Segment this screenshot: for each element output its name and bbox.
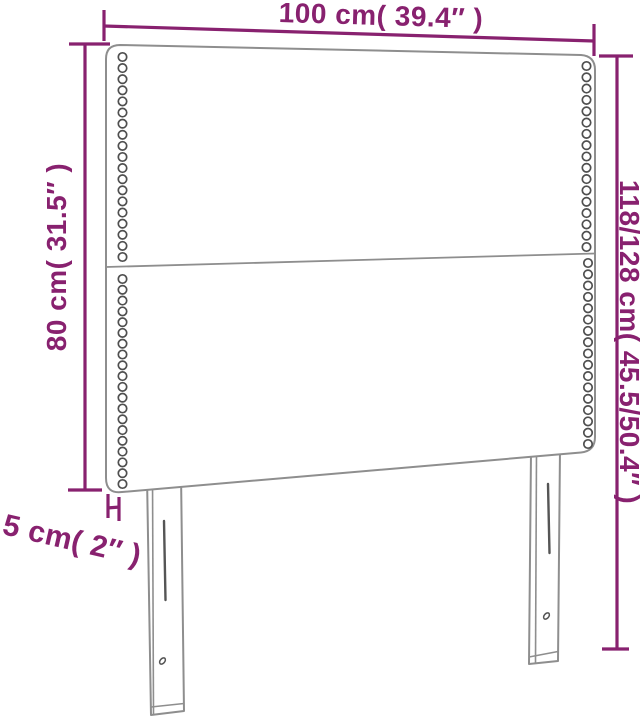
nailhead-stud — [118, 231, 126, 239]
nailhead-stud — [118, 426, 126, 434]
nailhead-stud — [582, 73, 590, 81]
nailhead-stud — [582, 84, 590, 92]
nailhead-stud — [118, 186, 126, 194]
headboard — [106, 45, 595, 492]
right-leg-mounting-slot — [548, 484, 550, 553]
nailhead-stud — [118, 208, 126, 216]
nailhead-stud — [582, 232, 590, 240]
nailhead-stud — [118, 120, 126, 128]
nailhead-stud — [118, 383, 126, 391]
nailhead-stud — [584, 383, 592, 391]
nailhead-stud — [584, 315, 592, 323]
nailhead-stud — [582, 175, 590, 183]
nailhead-stud — [582, 220, 590, 228]
nailhead-stud — [584, 372, 592, 380]
thickness-dimension-line — [107, 507, 120, 508]
nailhead-stud — [118, 242, 126, 250]
nailhead-stud — [118, 480, 126, 488]
nailhead-stud — [118, 296, 126, 304]
nailhead-stud — [118, 64, 126, 72]
nailhead-stud — [118, 164, 126, 172]
height-right-dimension-label: 118/128 cm( 45.5/50.4″ ) — [613, 180, 643, 504]
nailhead-stud — [118, 253, 126, 261]
nailhead-stud — [584, 259, 592, 267]
nailhead-stud — [118, 153, 126, 161]
nailhead-stud — [582, 118, 590, 126]
left-leg — [147, 473, 184, 715]
thickness-dimension — [107, 494, 120, 521]
nailhead-stud — [118, 350, 126, 358]
nailhead-stud — [118, 437, 126, 445]
nailhead-stud — [584, 440, 592, 448]
nailhead-stud — [582, 164, 590, 172]
left-leg-mounting-slot — [164, 521, 166, 600]
nailhead-stud — [118, 86, 126, 94]
nailhead-stud — [582, 186, 590, 194]
nailhead-stud — [118, 415, 126, 423]
nailhead-stud — [584, 349, 592, 357]
headboard-outline — [106, 45, 595, 492]
left-leg-side-edge — [153, 476, 154, 714]
nailhead-stud — [118, 75, 126, 83]
product-dimension-diagram: 100 cm( 39.4″ ) 80 cm( 31.5″ ) 118/128 c… — [0, 0, 643, 720]
diagram-canvas — [0, 0, 643, 720]
nailhead-stud — [582, 130, 590, 138]
nailhead-stud — [118, 469, 126, 477]
nailhead-stud — [582, 96, 590, 104]
height-left-dimension-label: 80 cm( 31.5″ ) — [41, 163, 73, 352]
nailhead-stud — [582, 141, 590, 149]
nailhead-stud — [584, 270, 592, 278]
nailhead-stud — [584, 338, 592, 346]
nailhead-stud — [118, 197, 126, 205]
nailhead-stud — [118, 53, 126, 61]
right-leg — [529, 449, 560, 664]
nailhead-stud — [584, 395, 592, 403]
nailhead-stud — [582, 152, 590, 160]
nailhead-stud — [118, 372, 126, 380]
height-left-dimension — [68, 44, 110, 490]
nailhead-stud — [118, 108, 126, 116]
nailhead-stud — [118, 361, 126, 369]
nailhead-stud — [584, 417, 592, 425]
nailhead-stud — [582, 209, 590, 217]
nailhead-stud — [582, 198, 590, 206]
nailhead-stud — [118, 329, 126, 337]
nailhead-stud — [118, 175, 126, 183]
right-leg-side-edge — [536, 453, 537, 663]
nailhead-stud — [118, 97, 126, 105]
nailhead-stud — [118, 220, 126, 228]
nailhead-stud — [118, 340, 126, 348]
right-leg-outline — [529, 449, 560, 664]
nailhead-stud — [582, 107, 590, 115]
nailhead-stud — [118, 286, 126, 294]
width-dimension-label: 100 cm( 39.4″ ) — [278, 0, 483, 35]
nailhead-stud — [118, 131, 126, 139]
nailhead-stud — [582, 243, 590, 251]
nailhead-stud — [118, 142, 126, 150]
nailhead-stud — [118, 275, 126, 283]
nailhead-stud — [582, 62, 590, 70]
nailhead-stud — [584, 406, 592, 414]
nailhead-stud — [118, 307, 126, 315]
nailhead-stud — [118, 394, 126, 402]
nailhead-stud — [118, 458, 126, 466]
nailhead-stud — [584, 293, 592, 301]
nailhead-stud — [584, 361, 592, 369]
nailhead-stud — [584, 327, 592, 335]
nailhead-stud — [118, 318, 126, 326]
nailhead-stud — [118, 404, 126, 412]
nailhead-stud — [584, 281, 592, 289]
nailhead-stud — [584, 429, 592, 437]
nailhead-stud — [118, 447, 126, 455]
nailhead-stud — [584, 304, 592, 312]
